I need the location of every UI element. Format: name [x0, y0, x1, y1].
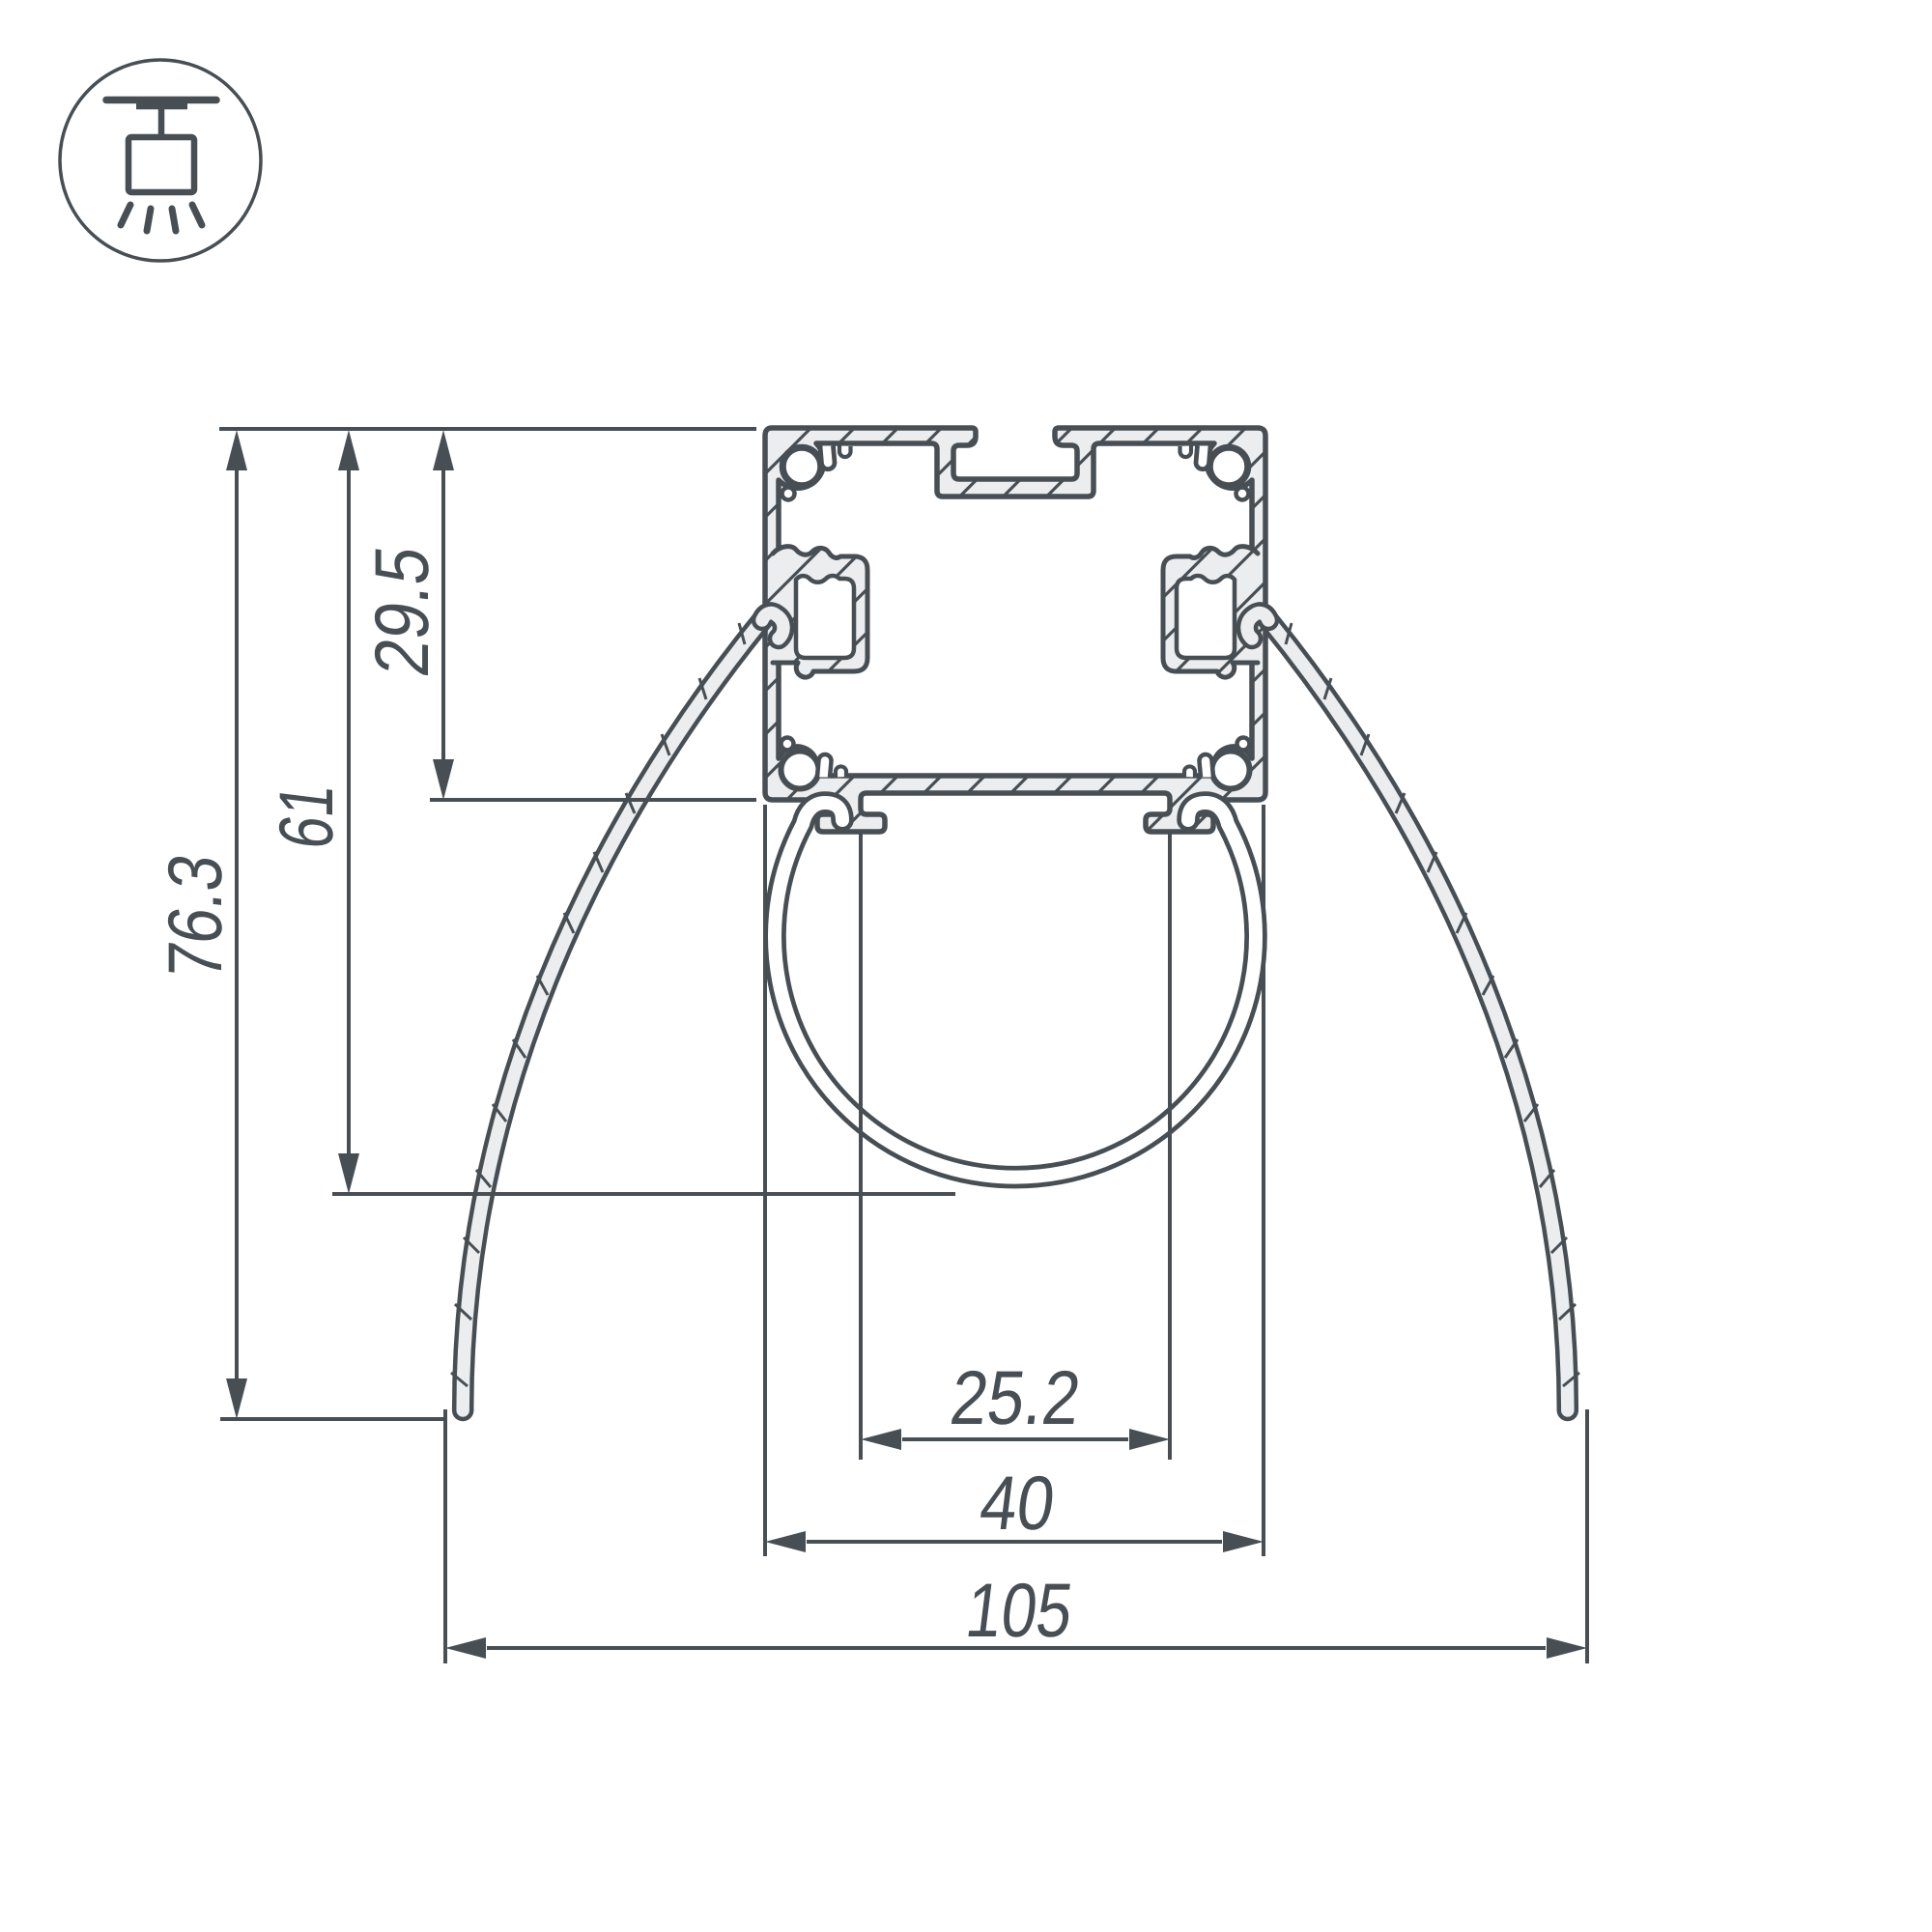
svg-text:29.5: 29.5: [358, 542, 444, 681]
svg-text:76.3: 76.3: [152, 849, 238, 983]
svg-text:61: 61: [263, 779, 349, 853]
svg-text:40: 40: [976, 1460, 1060, 1546]
svg-text:25.2: 25.2: [946, 1354, 1085, 1440]
svg-text:105: 105: [961, 1567, 1077, 1653]
